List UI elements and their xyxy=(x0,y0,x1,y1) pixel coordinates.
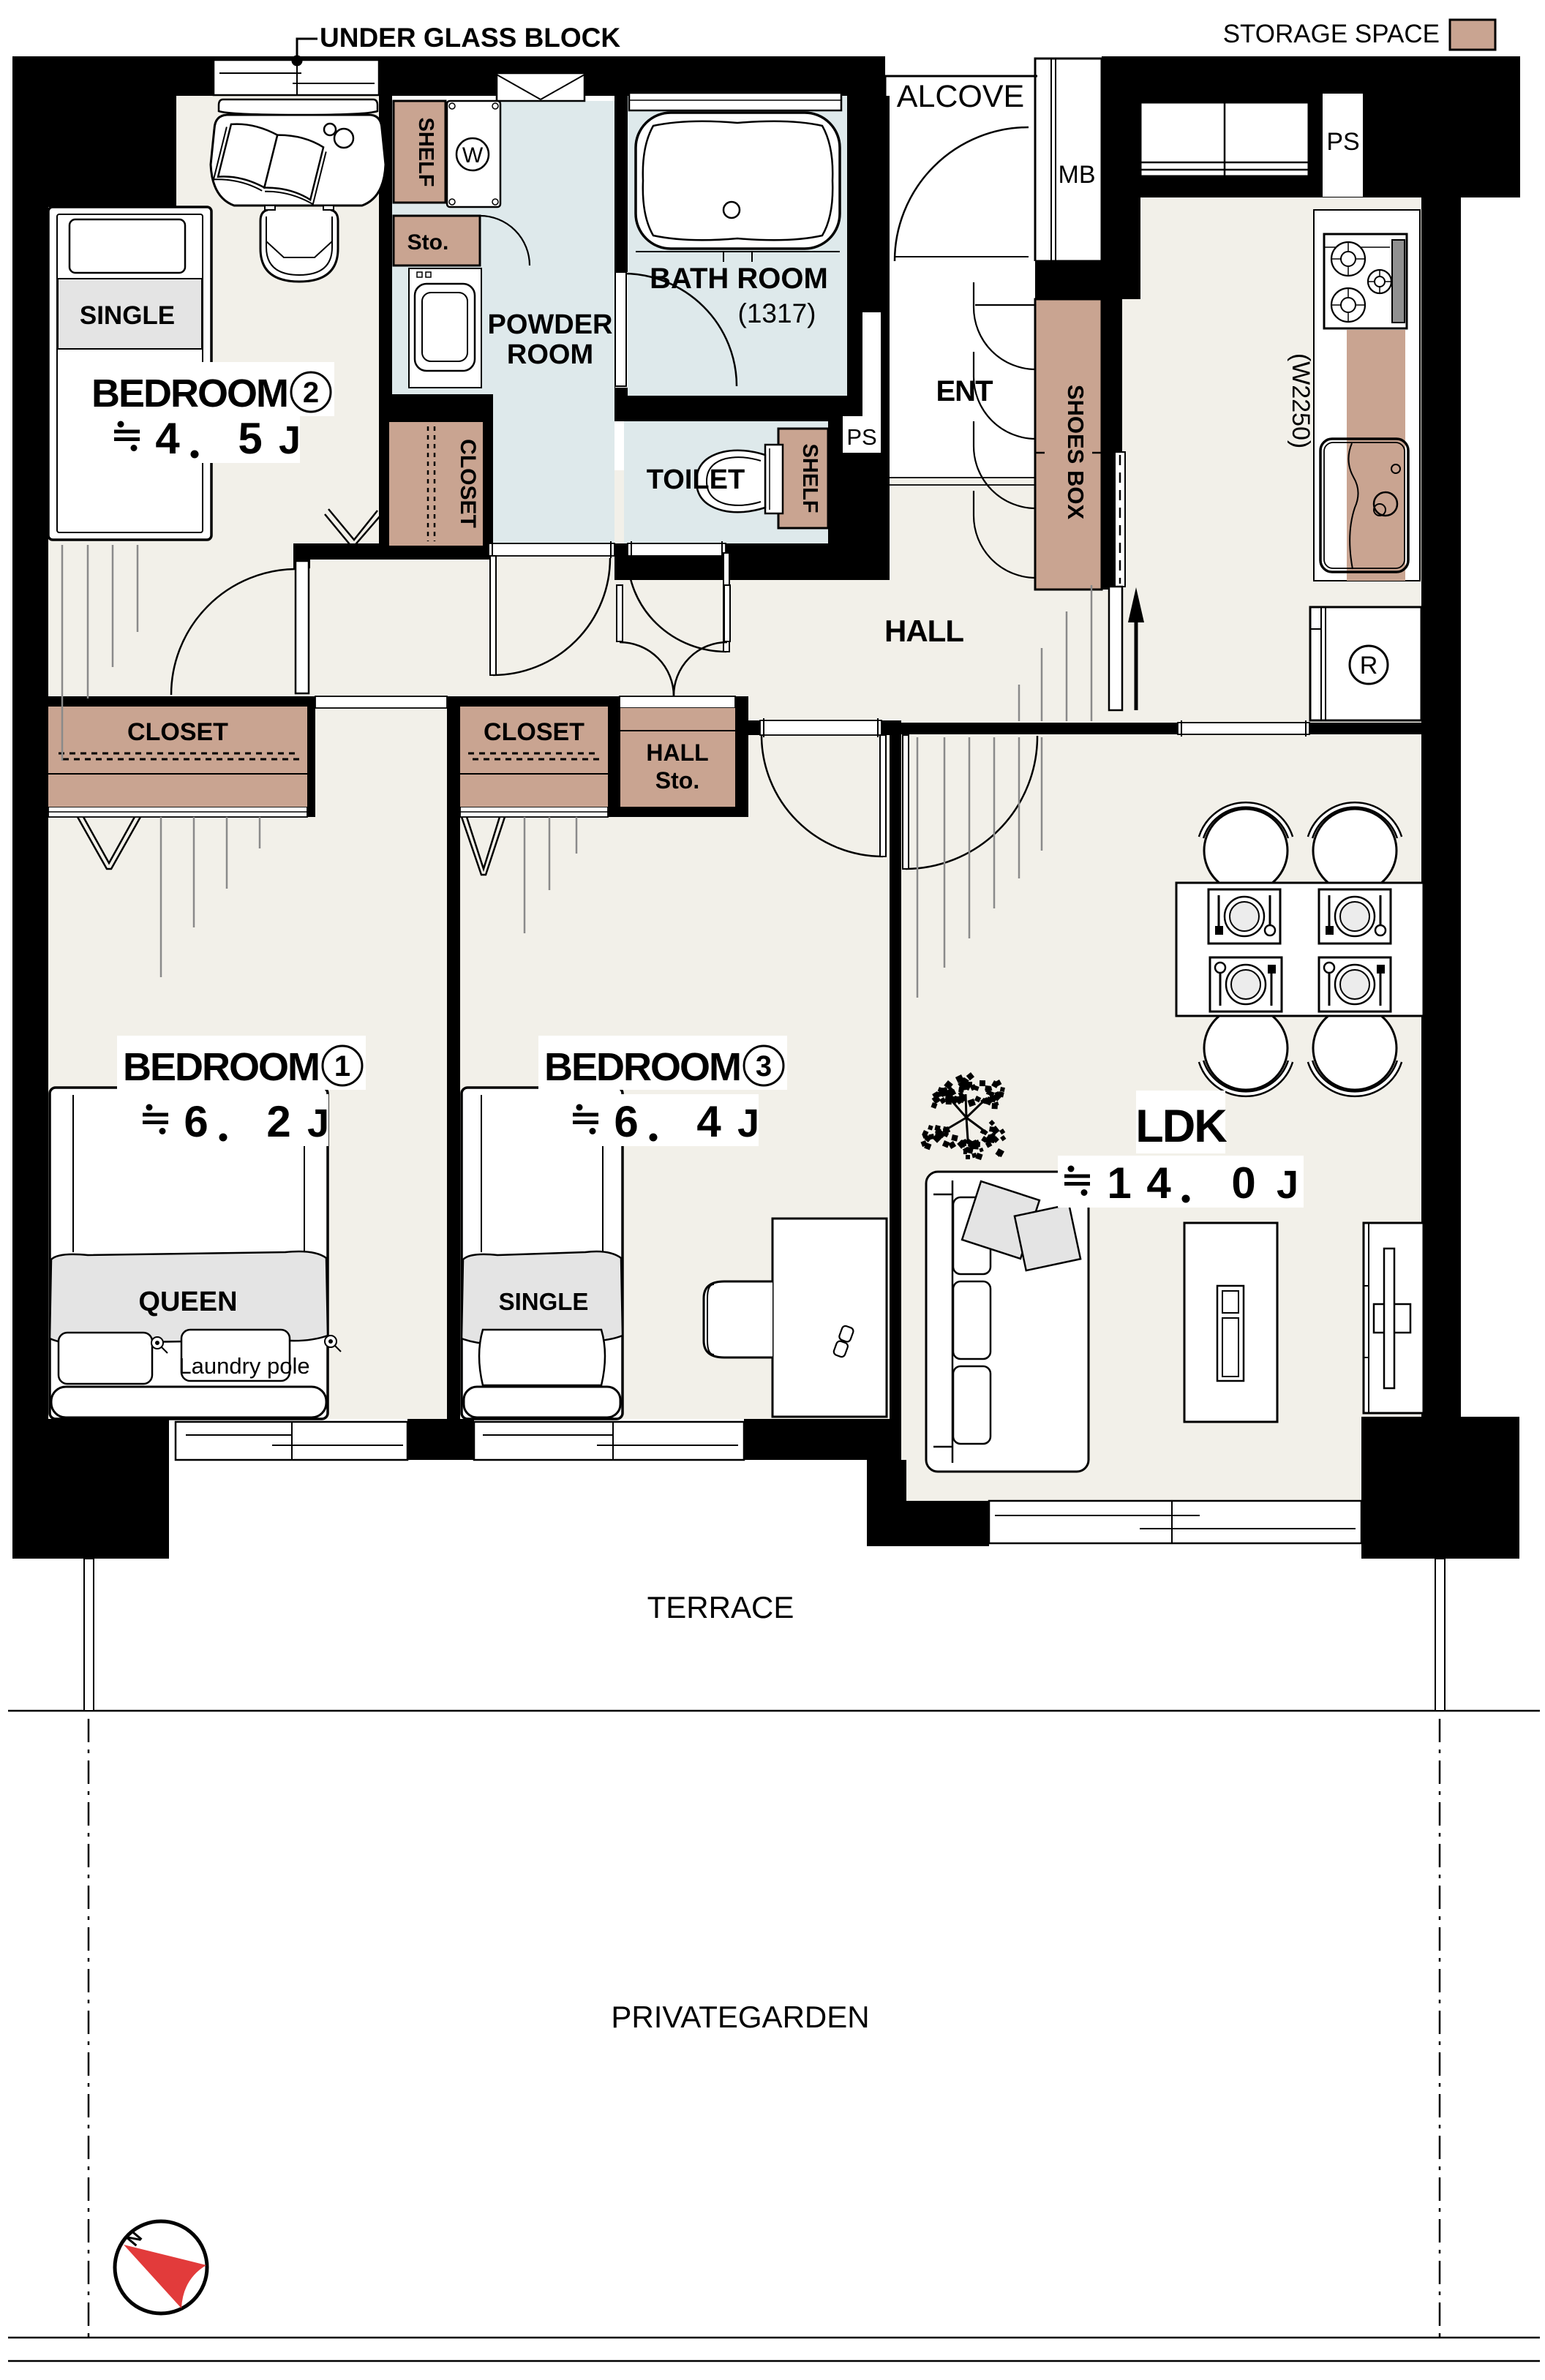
svg-text:5: 5 xyxy=(238,414,262,463)
svg-text:Laundry pole: Laundry pole xyxy=(178,1353,309,1379)
svg-text:(W2250): (W2250) xyxy=(1287,353,1315,448)
svg-text:6: 6 xyxy=(184,1097,208,1146)
svg-text:4: 4 xyxy=(155,414,180,463)
svg-text:(1317): (1317) xyxy=(738,298,816,328)
svg-text:0: 0 xyxy=(1231,1159,1255,1208)
svg-text:TOILET: TOILET xyxy=(647,464,745,495)
svg-text:ALCOVE: ALCOVE xyxy=(897,79,1024,114)
svg-text:J: J xyxy=(307,1101,329,1145)
svg-text:SINGLE: SINGLE xyxy=(80,301,175,330)
svg-text:BEDROOM: BEDROOM xyxy=(91,372,287,415)
svg-text:PS: PS xyxy=(1326,128,1359,156)
svg-text:1: 1 xyxy=(1107,1159,1131,1208)
svg-text:2: 2 xyxy=(266,1097,290,1146)
svg-text:Sto.: Sto. xyxy=(407,230,449,255)
svg-text:ENT: ENT xyxy=(936,375,993,407)
svg-text:SHELF: SHELF xyxy=(798,443,822,513)
svg-text:POWDER: POWDER xyxy=(488,309,613,340)
svg-text:BEDROOM: BEDROOM xyxy=(123,1045,319,1089)
svg-text:4: 4 xyxy=(696,1097,721,1146)
svg-text:UNDER GLASS BLOCK: UNDER GLASS BLOCK xyxy=(320,23,620,53)
svg-text:J: J xyxy=(279,418,301,462)
svg-text:2: 2 xyxy=(303,377,319,409)
svg-text:1: 1 xyxy=(334,1050,350,1082)
svg-text:Sto.: Sto. xyxy=(655,767,699,794)
svg-text:CLOSET: CLOSET xyxy=(456,439,480,528)
svg-text:BATH ROOM: BATH ROOM xyxy=(650,263,828,295)
svg-text:HALL: HALL xyxy=(646,739,708,766)
svg-text:CLOSET: CLOSET xyxy=(127,718,228,746)
svg-text:TERRACE: TERRACE xyxy=(647,1590,794,1624)
svg-text:J: J xyxy=(1277,1163,1298,1207)
svg-text:4: 4 xyxy=(1146,1159,1171,1208)
svg-text:SINGLE: SINGLE xyxy=(499,1288,589,1315)
svg-text:PRIVATEGARDEN: PRIVATEGARDEN xyxy=(611,2000,869,2034)
svg-text:QUEEN: QUEEN xyxy=(138,1287,237,1317)
svg-text:J: J xyxy=(737,1101,759,1145)
svg-text:R: R xyxy=(1360,652,1378,679)
svg-text:W: W xyxy=(462,143,484,167)
svg-text:CLOSET: CLOSET xyxy=(484,718,584,746)
svg-text:PS: PS xyxy=(846,424,876,450)
svg-text:LDK: LDK xyxy=(1135,1101,1227,1152)
svg-text:6: 6 xyxy=(614,1097,638,1146)
svg-text:BEDROOM: BEDROOM xyxy=(544,1045,740,1089)
svg-text:SHOES BOX: SHOES BOX xyxy=(1063,385,1089,520)
svg-text:ROOM: ROOM xyxy=(507,339,593,370)
svg-text:MB: MB xyxy=(1059,161,1096,189)
svg-text:3: 3 xyxy=(756,1050,772,1082)
svg-text:HALL: HALL xyxy=(884,614,963,648)
svg-text:STORAGE SPACE: STORAGE SPACE xyxy=(1223,20,1440,48)
svg-text:SHELF: SHELF xyxy=(414,117,437,187)
